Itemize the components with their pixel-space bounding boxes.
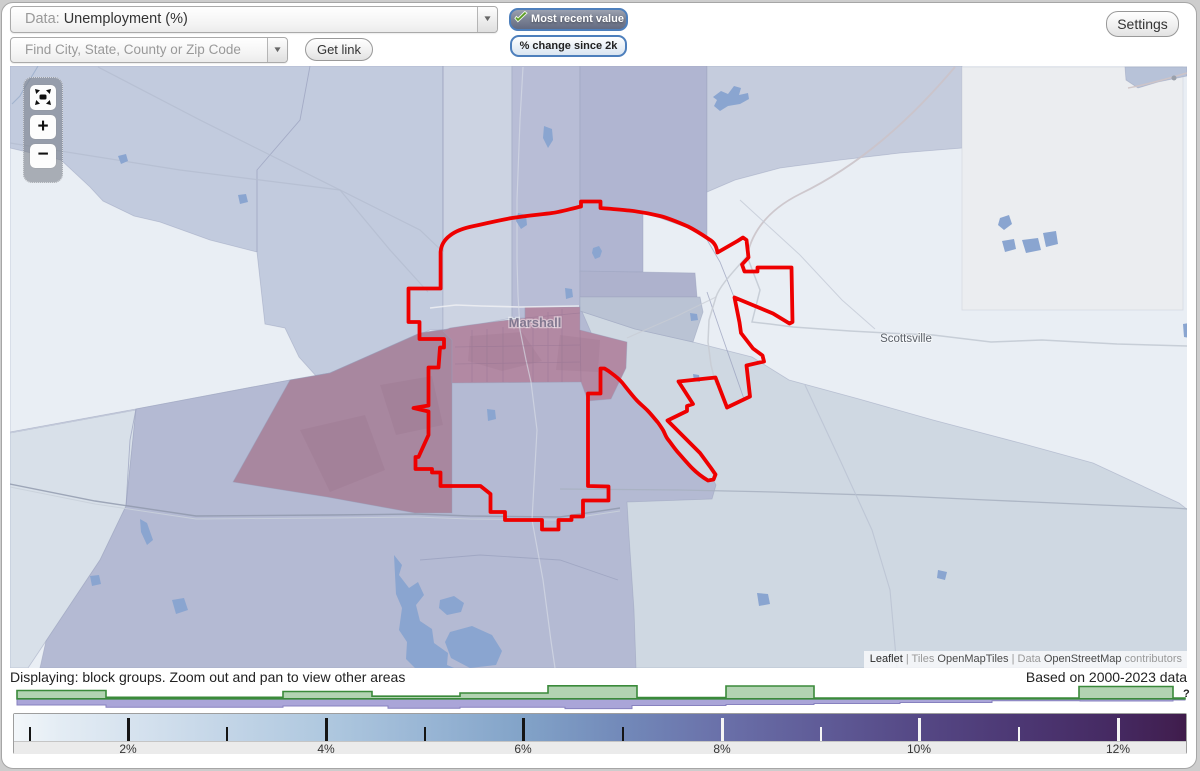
svg-text:Marshall: Marshall (509, 315, 562, 330)
svg-text:Scottsville: Scottsville (880, 333, 932, 345)
